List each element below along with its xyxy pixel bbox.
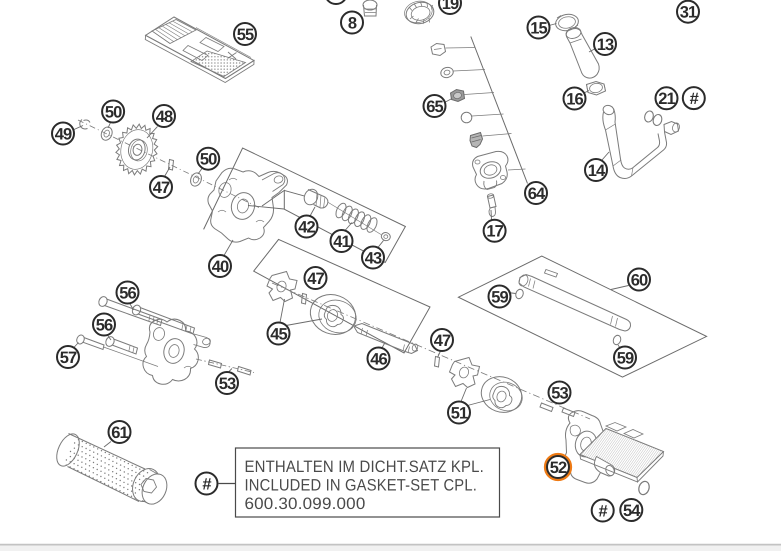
svg-text:31: 31 [680,4,697,22]
svg-text:59: 59 [617,349,634,367]
svg-text:21: 21 [658,90,675,108]
svg-text:50: 50 [105,103,122,121]
svg-text:65: 65 [426,98,443,116]
svg-text:51: 51 [451,404,468,422]
svg-text:13: 13 [597,36,614,54]
svg-text:49: 49 [55,125,72,143]
svg-text:64: 64 [528,185,546,203]
svg-text:56: 56 [119,284,136,302]
svg-text:61: 61 [111,424,128,442]
svg-text:57: 57 [60,349,77,367]
svg-text:46: 46 [370,350,387,368]
svg-text:600.30.099.000: 600.30.099.000 [245,495,366,513]
svg-text:47: 47 [307,270,324,288]
svg-text:#: # [599,502,608,520]
svg-text:43: 43 [365,249,382,267]
svg-text:ENTHALTEN IM DICHT.SATZ KPL.: ENTHALTEN IM DICHT.SATZ KPL. [245,458,485,476]
svg-text:53: 53 [219,375,236,393]
svg-text:#: # [202,475,211,493]
svg-text:42: 42 [298,218,315,236]
svg-text:52: 52 [550,459,567,477]
svg-text:19: 19 [442,0,459,13]
svg-text:59: 59 [491,288,508,306]
svg-text:53: 53 [551,384,568,402]
svg-text:8: 8 [348,14,357,32]
svg-text:40: 40 [212,258,229,276]
svg-text:47: 47 [434,332,451,350]
svg-text:16: 16 [566,90,583,108]
svg-text:41: 41 [333,233,350,251]
svg-text:48: 48 [156,108,173,126]
svg-text:56: 56 [96,316,113,334]
svg-text:45: 45 [270,325,287,343]
svg-text:55: 55 [237,26,254,44]
svg-text:47: 47 [153,179,170,197]
svg-text:14: 14 [588,162,606,180]
svg-text:54: 54 [623,502,641,520]
svg-text:INCLUDED IN GASKET-SET CPL.: INCLUDED IN GASKET-SET CPL. [245,476,478,494]
svg-text:#: # [690,90,699,108]
svg-text:15: 15 [530,19,547,37]
svg-text:17: 17 [486,223,503,241]
svg-text:60: 60 [631,271,648,289]
svg-text:50: 50 [200,151,217,169]
